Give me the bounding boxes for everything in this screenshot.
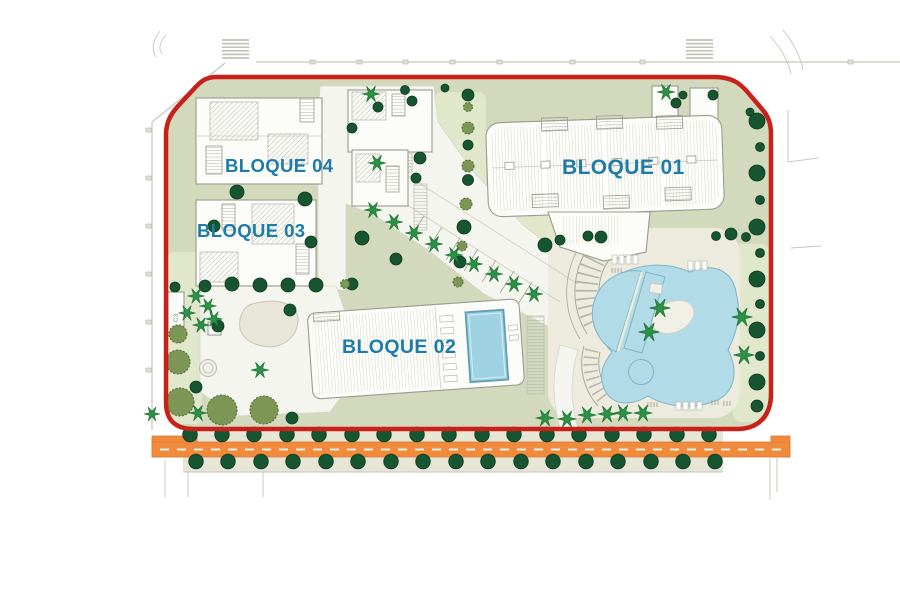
building-bloque-03 xyxy=(196,200,316,286)
stairs-icon xyxy=(206,146,222,174)
pergola-strip xyxy=(527,316,544,394)
stairs-icon xyxy=(313,311,340,322)
label-bloque-04: BLOQUE 04 xyxy=(225,155,334,176)
stairs-icon xyxy=(665,187,691,201)
crosswalk-icon xyxy=(222,40,249,58)
label-bloque-03: BLOQUE 03 xyxy=(197,220,305,241)
masterplan-canvas: C3 xyxy=(0,0,900,600)
site-plan: C3 xyxy=(0,0,900,600)
stairs-icon xyxy=(392,94,405,116)
stairs-icon xyxy=(656,115,682,129)
crosswalk-icon xyxy=(686,40,713,58)
stairs-icon xyxy=(603,195,629,209)
round-pool xyxy=(629,360,654,385)
label-bloque-01: BLOQUE 01 xyxy=(562,156,685,179)
stairs-icon xyxy=(386,166,399,192)
play-circle xyxy=(200,360,217,377)
stairs-icon xyxy=(541,117,567,131)
bloque-02-pool xyxy=(465,310,508,382)
stairs-icon xyxy=(296,244,309,274)
label-bloque-02: BLOQUE 02 xyxy=(342,336,456,358)
stairs-icon xyxy=(596,115,622,129)
stairs-icon xyxy=(532,194,558,208)
ramp xyxy=(414,184,427,230)
bench-label: C3 xyxy=(174,313,180,322)
pool-complex xyxy=(592,255,738,410)
stairs-icon xyxy=(300,98,314,122)
